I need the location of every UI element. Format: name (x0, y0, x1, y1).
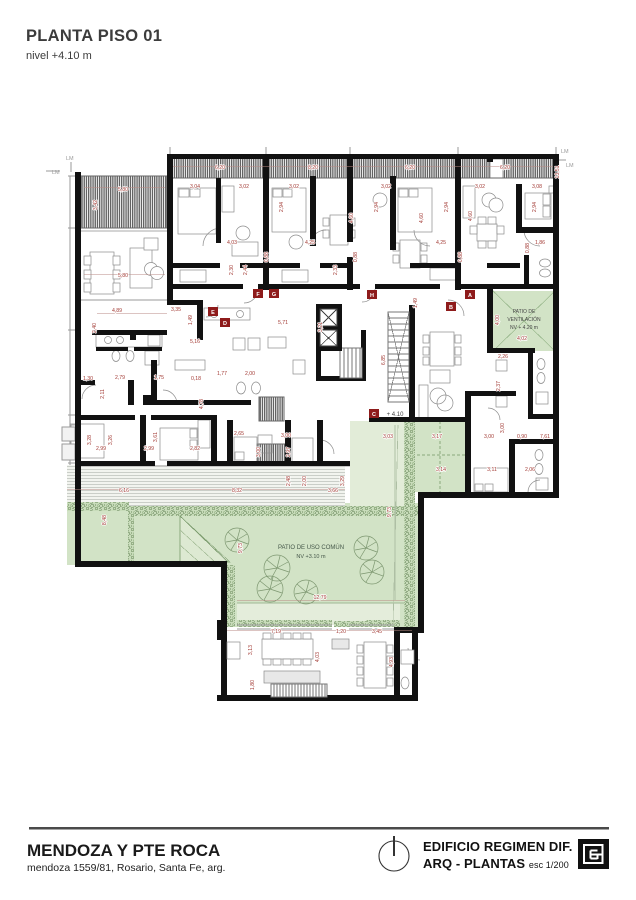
svg-text:0,90: 0,90 (517, 434, 527, 440)
svg-text:3,11: 3,11 (487, 467, 497, 473)
svg-text:E: E (211, 310, 215, 316)
svg-text:3,61: 3,61 (153, 432, 159, 442)
svg-text:2,65: 2,65 (234, 431, 244, 437)
svg-text:6,85: 6,85 (381, 355, 387, 365)
svg-text:3,28: 3,28 (87, 435, 93, 445)
svg-text:C: C (372, 412, 376, 418)
svg-text:PLANTA PISO 01: PLANTA PISO 01 (26, 27, 162, 45)
svg-text:4,89: 4,89 (112, 308, 122, 314)
svg-text:5,16: 5,16 (190, 339, 200, 345)
svg-text:2,99: 2,99 (96, 446, 106, 452)
svg-text:3,02: 3,02 (289, 184, 299, 190)
svg-text:2,33: 2,33 (333, 265, 339, 275)
svg-text:2,00: 2,00 (302, 476, 308, 486)
svg-text:3,21: 3,21 (318, 322, 324, 332)
svg-text:1,30: 1,30 (83, 376, 93, 382)
svg-text:LM: LM (66, 156, 74, 162)
svg-text:2,11: 2,11 (100, 389, 106, 399)
svg-text:+ 4.10: + 4.10 (387, 412, 405, 418)
svg-text:3,13: 3,13 (248, 645, 254, 655)
svg-text:2,00: 2,00 (245, 371, 255, 377)
svg-text:A: A (468, 293, 472, 299)
svg-text:3,00: 3,00 (500, 423, 506, 433)
svg-text:3,29: 3,29 (340, 476, 346, 486)
svg-text:3,45: 3,45 (372, 629, 382, 635)
svg-text:MENDOZA Y PTE ROCA: MENDOZA Y PTE ROCA (27, 841, 220, 860)
svg-text:0,88: 0,88 (353, 252, 359, 262)
svg-text:2,06: 2,06 (525, 467, 535, 473)
svg-text:1,49: 1,49 (413, 298, 419, 308)
svg-text:2,94: 2,94 (444, 202, 450, 212)
svg-text:H: H (370, 293, 374, 299)
svg-text:5,71: 5,71 (278, 320, 288, 326)
svg-text:4,60: 4,60 (349, 213, 355, 223)
svg-text:B: B (449, 305, 453, 311)
svg-text:PATIO DE USO COMÚN: PATIO DE USO COMÚN (278, 544, 344, 551)
svg-text:1,49: 1,49 (188, 315, 194, 325)
svg-text:2,30: 2,30 (229, 265, 235, 275)
svg-text:3,42: 3,42 (93, 200, 99, 210)
svg-text:2,99: 2,99 (144, 446, 154, 452)
svg-text:1,80: 1,80 (250, 680, 256, 690)
svg-text:9,73: 9,73 (387, 507, 393, 517)
svg-text:9,73: 9,73 (238, 543, 244, 553)
svg-text:5,80: 5,80 (118, 273, 128, 279)
svg-text:nivel +4.10 m: nivel +4.10 m (26, 50, 92, 62)
svg-text:4,03: 4,03 (315, 652, 321, 662)
svg-text:EDIFICIO REGIMEN DIF.: EDIFICIO REGIMEN DIF. (423, 839, 572, 854)
svg-text:4,00: 4,00 (495, 315, 501, 325)
svg-text:2,94: 2,94 (279, 202, 285, 212)
svg-text:2,79: 2,79 (115, 375, 125, 381)
svg-text:3,00: 3,00 (281, 433, 291, 439)
svg-text:6,20: 6,20 (215, 165, 225, 171)
svg-text:0,18: 0,18 (191, 376, 201, 382)
svg-text:2,94: 2,94 (374, 202, 380, 212)
svg-text:12,79: 12,79 (314, 595, 327, 601)
svg-text:4,25: 4,25 (305, 240, 315, 246)
svg-text:3,14: 3,14 (436, 467, 446, 473)
svg-text:6,16: 6,16 (119, 488, 129, 494)
svg-text:D: D (223, 321, 227, 327)
svg-text:3,35: 3,35 (171, 307, 181, 313)
svg-text:4,93: 4,93 (389, 657, 395, 667)
svg-text:3,02: 3,02 (381, 184, 391, 190)
svg-text:4,25: 4,25 (436, 240, 446, 246)
svg-text:0,88: 0,88 (525, 243, 531, 253)
svg-text:2,97: 2,97 (286, 447, 292, 457)
svg-text:2,40: 2,40 (92, 323, 98, 333)
svg-text:2,37: 2,37 (496, 381, 502, 391)
svg-text:LM: LM (566, 163, 574, 169)
svg-text:5,80: 5,80 (118, 187, 128, 193)
svg-text:4,02: 4,02 (517, 336, 527, 342)
svg-text:1,86: 1,86 (535, 240, 545, 246)
svg-text:0,88: 0,88 (264, 252, 270, 262)
svg-text:2,48: 2,48 (286, 476, 292, 486)
svg-text:1,75: 1,75 (154, 375, 164, 381)
svg-text:G: G (272, 292, 276, 298)
svg-text:3,02: 3,02 (239, 184, 249, 190)
svg-text:6,20: 6,20 (500, 165, 510, 171)
svg-text:2,44: 2,44 (243, 265, 249, 275)
svg-text:ARQ - PLANTAS esc 1/200: ARQ - PLANTAS esc 1/200 (423, 856, 569, 871)
svg-text:8,48: 8,48 (102, 515, 108, 525)
svg-text:13,51: 13,51 (555, 165, 561, 178)
svg-text:3,66: 3,66 (328, 488, 338, 494)
svg-text:4,78: 4,78 (199, 399, 205, 409)
svg-text:7,19: 7,19 (271, 629, 281, 635)
svg-text:NV +3.10 m: NV +3.10 m (296, 554, 326, 560)
svg-text:0,88: 0,88 (458, 252, 464, 262)
svg-text:1,77: 1,77 (217, 371, 227, 377)
svg-text:3,08: 3,08 (532, 184, 542, 190)
svg-text:7,61: 7,61 (540, 434, 550, 440)
svg-text:4,60: 4,60 (468, 211, 474, 221)
svg-text:3,02: 3,02 (475, 184, 485, 190)
svg-text:8,32: 8,32 (232, 488, 242, 494)
svg-text:NV + 4.20 m: NV + 4.20 m (510, 325, 538, 331)
svg-text:mendoza 1559/81, Rosario, Sant: mendoza 1559/81, Rosario, Santa Fe, arg. (27, 862, 225, 874)
svg-text:4,60: 4,60 (419, 213, 425, 223)
svg-text:PATIO DE: PATIO DE (513, 309, 536, 315)
svg-text:LM: LM (561, 149, 569, 155)
svg-text:2,82: 2,82 (190, 446, 200, 452)
svg-text:2,26: 2,26 (498, 354, 508, 360)
svg-text:6,20: 6,20 (405, 165, 415, 171)
svg-text:3,00: 3,00 (256, 447, 262, 457)
svg-text:VENTILACIÓN: VENTILACIÓN (507, 316, 541, 323)
svg-text:3,17: 3,17 (432, 434, 442, 440)
svg-text:3,26: 3,26 (108, 435, 114, 445)
svg-text:2,94: 2,94 (532, 202, 538, 212)
svg-text:3,00: 3,00 (484, 434, 494, 440)
svg-text:8,20: 8,20 (308, 165, 318, 171)
svg-text:4,03: 4,03 (227, 240, 237, 246)
svg-text:3,03: 3,03 (383, 434, 393, 440)
svg-text:1,20: 1,20 (336, 629, 346, 635)
svg-text:3,04: 3,04 (190, 184, 200, 190)
